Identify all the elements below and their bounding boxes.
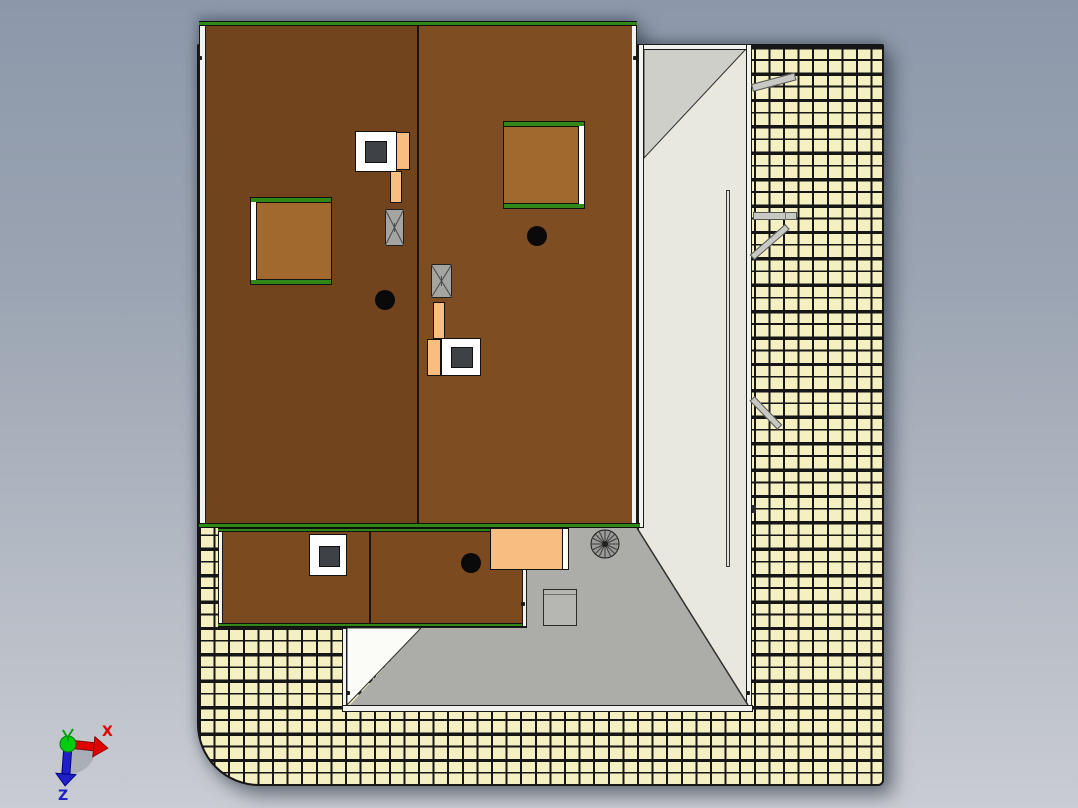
beam-joint-line — [785, 212, 786, 220]
x-axis-label: X — [102, 724, 113, 740]
spiral-staircase[interactable] — [590, 529, 620, 559]
main-roof-ridge — [417, 25, 419, 523]
chimney-flashing-orange[interactable] — [427, 339, 441, 376]
vent-pipe[interactable] — [390, 171, 402, 203]
main-roof-top-edge — [199, 21, 637, 26]
annex-left-gutter — [638, 44, 644, 528]
vertex-dot — [746, 691, 750, 695]
roof-drain[interactable] — [375, 290, 395, 310]
terrace-bottom-gutter — [342, 705, 753, 712]
roof-drain[interactable] — [527, 226, 547, 246]
chimney-flue — [319, 546, 340, 567]
rafter-beam[interactable] — [753, 212, 797, 220]
annex-shaded-facet[interactable] — [638, 44, 752, 174]
main-roof-left-gutter — [199, 21, 206, 527]
vertex-dot — [633, 56, 637, 60]
chimney[interactable] — [441, 338, 481, 376]
skylight[interactable] — [250, 197, 332, 285]
annex-top-gutter — [638, 44, 752, 50]
roof-vent[interactable] — [431, 264, 452, 298]
balcony-slab[interactable] — [490, 528, 569, 570]
chimney-flue — [451, 347, 473, 368]
edge-tick-mark — [752, 505, 756, 513]
origin-triad[interactable]: X Z — [30, 712, 160, 808]
skylight-bottom-edge — [251, 279, 331, 284]
balcony-edge-strip — [562, 529, 568, 569]
annex-ridge-line — [726, 190, 730, 567]
vent-pipe[interactable] — [433, 302, 445, 339]
skylight-top-edge — [504, 122, 584, 127]
terrace-table[interactable] — [543, 589, 577, 626]
chimney-flashing-orange[interactable] — [396, 132, 410, 170]
roof-vent[interactable] — [385, 209, 404, 246]
vertex-dot — [346, 691, 350, 695]
skylight-frame-strip — [578, 126, 584, 204]
chimney-flue — [365, 141, 387, 163]
house-top-view-model — [0, 0, 1078, 808]
skylight-bottom-edge — [504, 203, 584, 208]
skylight-frame-strip — [251, 202, 257, 280]
chimney[interactable] — [355, 131, 397, 172]
vertex-dot — [198, 56, 202, 60]
z-axis-label: Z — [58, 788, 68, 804]
cad-viewport[interactable]: X Z — [0, 0, 1078, 808]
table-edge-line — [544, 594, 576, 595]
terrace-left-gutter — [342, 628, 347, 710]
skylight[interactable] — [503, 121, 585, 209]
skylight-top-edge — [251, 198, 331, 203]
